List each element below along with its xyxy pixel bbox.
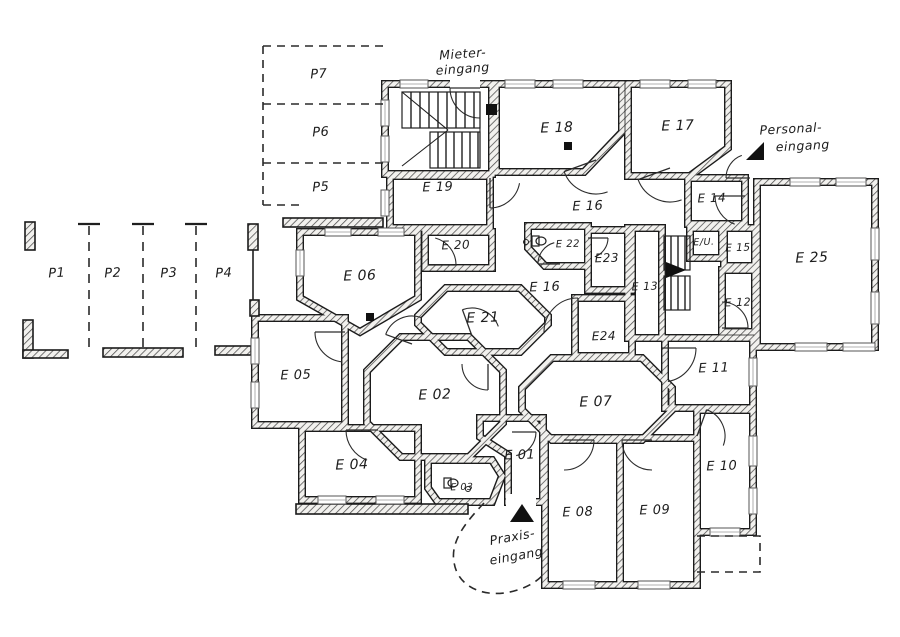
garden-wall xyxy=(103,348,183,357)
garden-wall xyxy=(283,218,383,227)
room-label-E10: E 10 xyxy=(706,458,737,474)
garden-wall xyxy=(250,300,259,316)
door-arc xyxy=(638,180,682,202)
praxis-entrance-label: eingang xyxy=(488,543,544,567)
parking-label-P1: P1 xyxy=(48,266,66,282)
parking-label-P5: P5 xyxy=(312,180,330,196)
floor-plan: E 18E 17E 19E 14E 25E 20E 22E23E/U.E 15E… xyxy=(0,0,900,637)
floor-plan-svg: E 18E 17E 19E 14E 25E 20E 22E23E/U.E 15E… xyxy=(0,0,900,637)
room-label-E15: E 15 xyxy=(725,242,751,255)
garden-wall xyxy=(296,504,468,514)
mieter-entrance-label: eingang xyxy=(435,59,490,78)
room-label-E07: E 07 xyxy=(579,393,613,410)
corridor-label: E 16 xyxy=(529,279,560,295)
parking-label-P2: P2 xyxy=(104,266,122,282)
praxis-entrance-label: Praxis- xyxy=(488,525,536,548)
room-label-E18: E 18 xyxy=(540,119,574,136)
staircase xyxy=(664,276,690,310)
room-label-E03: E 03 xyxy=(450,482,473,494)
personal-entrance-label: eingang xyxy=(775,137,830,155)
parking-label-P7: P7 xyxy=(310,67,328,83)
room-label-E02: E 02 xyxy=(418,386,452,403)
room-label-E17: E 17 xyxy=(661,117,695,134)
door-gap xyxy=(450,78,480,92)
room-label-E21: E 21 xyxy=(466,309,500,326)
room-fill-E24 xyxy=(575,298,632,356)
door-arc xyxy=(490,183,520,208)
room-label-E14: E 14 xyxy=(697,191,726,206)
garden-wall xyxy=(25,222,35,250)
room-label-E20: E 20 xyxy=(441,238,470,253)
garden-wall xyxy=(23,350,68,358)
room-label-E11: E 11 xyxy=(698,360,729,376)
parking-label-P3: P3 xyxy=(160,266,178,282)
room-label-E19: E 19 xyxy=(422,179,453,195)
room-label-E06: E 06 xyxy=(343,267,377,284)
personal-entrance-label: Personal- xyxy=(759,119,822,137)
room-label-E25: E 25 xyxy=(795,249,829,266)
parking-label-P4: P4 xyxy=(215,266,233,282)
corridor-label: E 16 xyxy=(572,198,603,214)
room-label-E04: E 04 xyxy=(335,456,369,473)
room-label-E22: E 22 xyxy=(556,239,581,251)
fixture-square-icon xyxy=(486,104,497,115)
room-label-E05: E 05 xyxy=(280,367,311,383)
garden-wall xyxy=(215,346,251,355)
fixture-square-icon xyxy=(564,142,572,150)
room-label-E13: E 13 xyxy=(631,280,658,294)
room-label-E23: E23 xyxy=(594,251,619,266)
room-label-EU: E/U. xyxy=(693,237,715,249)
room-label-E24: E24 xyxy=(591,329,616,344)
garden-wall xyxy=(248,224,258,250)
room-label-E12: E 12 xyxy=(724,296,751,310)
room-label-E08: E 08 xyxy=(562,504,593,520)
parking-label-P6: P6 xyxy=(312,125,330,141)
dashed-line xyxy=(697,536,760,572)
room-label-E09: E 09 xyxy=(639,502,670,518)
room-label-E01: E 01 xyxy=(504,447,535,463)
fixture-square-icon xyxy=(366,313,374,321)
